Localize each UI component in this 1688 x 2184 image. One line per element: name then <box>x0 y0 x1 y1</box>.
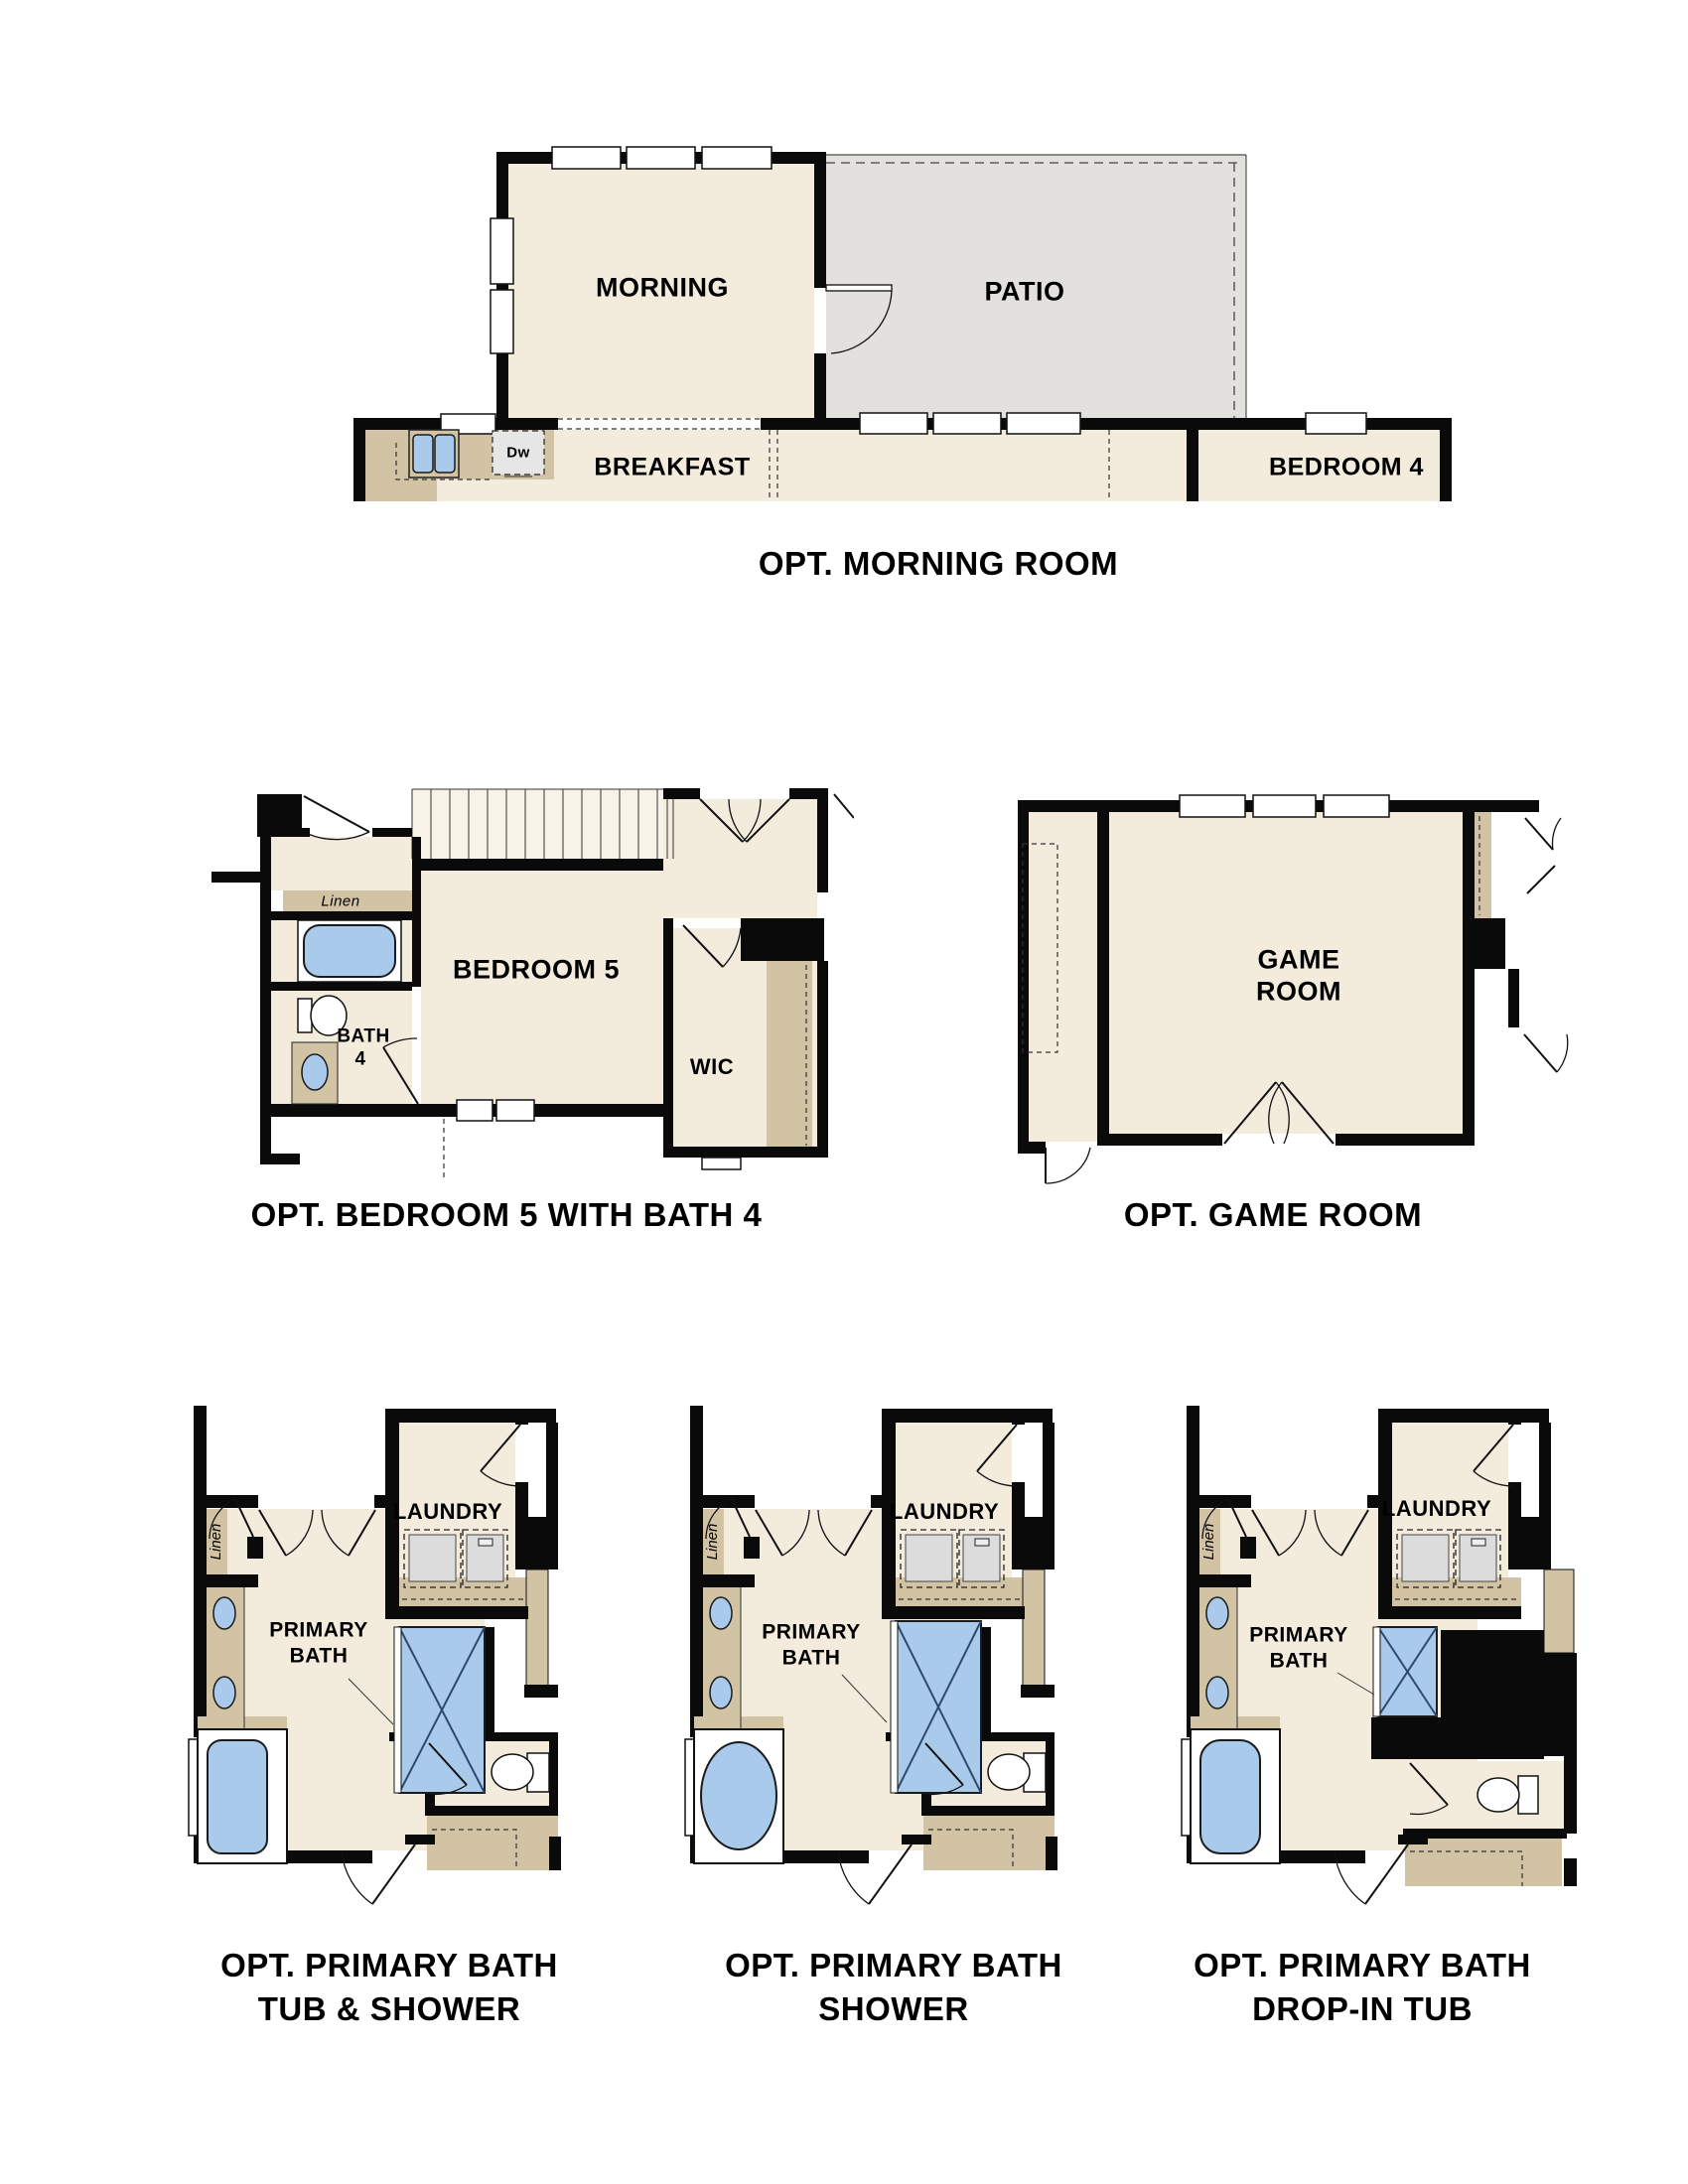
toilet <box>988 1753 1046 1792</box>
caption-morning-room: OPT. MORNING ROOM <box>759 542 1118 586</box>
room-label-bath4-line1: BATH <box>337 1027 389 1046</box>
room-label-laundry: LAUNDRY <box>393 1501 502 1523</box>
caption-bath-shower: OPT. PRIMARY BATH SHOWER <box>725 1944 1062 2031</box>
windows <box>1180 795 1389 817</box>
vanity-sink <box>292 1042 338 1104</box>
cased-opening <box>558 418 761 430</box>
caption-line1: OPT. PRIMARY BATH <box>725 1944 1062 1987</box>
room-label-morning: MORNING <box>596 275 729 302</box>
room-label-bedroom5: BEDROOM 5 <box>453 957 620 984</box>
fixture-label-dishwasher: Dw <box>506 446 530 461</box>
plan-bath1-drawing: Linen <box>164 1375 591 1926</box>
room-label-bath4-line2: 4 <box>354 1050 365 1069</box>
room-label-linen: Linen <box>208 1524 224 1561</box>
room-label-linen: Linen <box>704 1524 721 1561</box>
room-label-game: GAME <box>1258 947 1340 974</box>
plan-primary-bath-dropin-tub: Linen LAUNDRY PRIMARY BATH <box>1157 1375 1584 1926</box>
toilet <box>492 1753 549 1792</box>
room-label-laundry: LAUNDRY <box>890 1501 999 1523</box>
room-label-linen: Linen <box>321 894 359 909</box>
room-label-bath: BATH <box>782 1648 841 1669</box>
garden-tub <box>694 1716 783 1863</box>
caption-game-room: OPT. GAME ROOM <box>1124 1193 1422 1237</box>
caption-bath-tub-shower: OPT. PRIMARY BATH TUB & SHOWER <box>220 1944 558 2031</box>
toilet <box>1477 1776 1538 1814</box>
caption-line1: OPT. PRIMARY BATH <box>1194 1944 1531 1987</box>
room-label-linen: Linen <box>1200 1524 1217 1561</box>
plan-bath3-drawing: Linen <box>1157 1375 1584 1926</box>
plan-primary-bath-tub-shower: Linen LAUNDRY PRIMARY BATH <box>164 1375 591 1926</box>
plan-primary-bath-shower: Linen LAUNDRY PRIMARY BATH <box>660 1375 1087 1926</box>
floorplan-options-page: MORNING PATIO BREAKFAST BEDROOM 4 Dw OPT… <box>0 0 1688 2184</box>
room-label-bath: BATH <box>290 1646 349 1667</box>
plan-bedroom5-drawing <box>199 776 854 1203</box>
shower <box>891 1621 981 1793</box>
caption-bath-dropin-tub: OPT. PRIMARY BATH DROP-IN TUB <box>1194 1944 1531 2031</box>
plan-bath2-drawing: Linen <box>660 1375 1087 1926</box>
room-label-bath: BATH <box>1270 1651 1329 1672</box>
room-label-primary: PRIMARY <box>269 1620 368 1641</box>
caption-line1: OPT. PRIMARY BATH <box>220 1944 558 1987</box>
room-label-primary: PRIMARY <box>762 1622 861 1643</box>
shower <box>394 1627 485 1793</box>
room-label-primary: PRIMARY <box>1249 1625 1348 1646</box>
room-label-wic: WIC <box>690 1056 734 1078</box>
shower <box>1373 1627 1437 1716</box>
bathtub <box>198 1716 287 1863</box>
plan-bedroom5-bath4: Linen BEDROOM 5 BATH 4 WIC <box>199 776 854 1203</box>
caption-line2: TUB & SHOWER <box>220 1987 558 2031</box>
caption-bedroom5: OPT. BEDROOM 5 WITH BATH 4 <box>251 1193 763 1237</box>
room-label-patio: PATIO <box>985 279 1065 306</box>
room-label-laundry: LAUNDRY <box>1382 1498 1491 1520</box>
plan-game-room: GAME ROOM <box>983 774 1579 1201</box>
plan-morning-room: MORNING PATIO BREAKFAST BEDROOM 4 Dw <box>348 137 1456 514</box>
room-label-bedroom4: BEDROOM 4 <box>1269 456 1424 480</box>
room-label-breakfast: BREAKFAST <box>594 456 750 480</box>
kitchen-sink <box>409 430 459 478</box>
dropin-tub <box>1191 1716 1280 1863</box>
caption-line2: SHOWER <box>725 1987 1062 2031</box>
caption-line2: DROP-IN TUB <box>1194 1987 1531 2031</box>
room-label-room: ROOM <box>1256 979 1341 1006</box>
bathtub <box>298 920 401 982</box>
